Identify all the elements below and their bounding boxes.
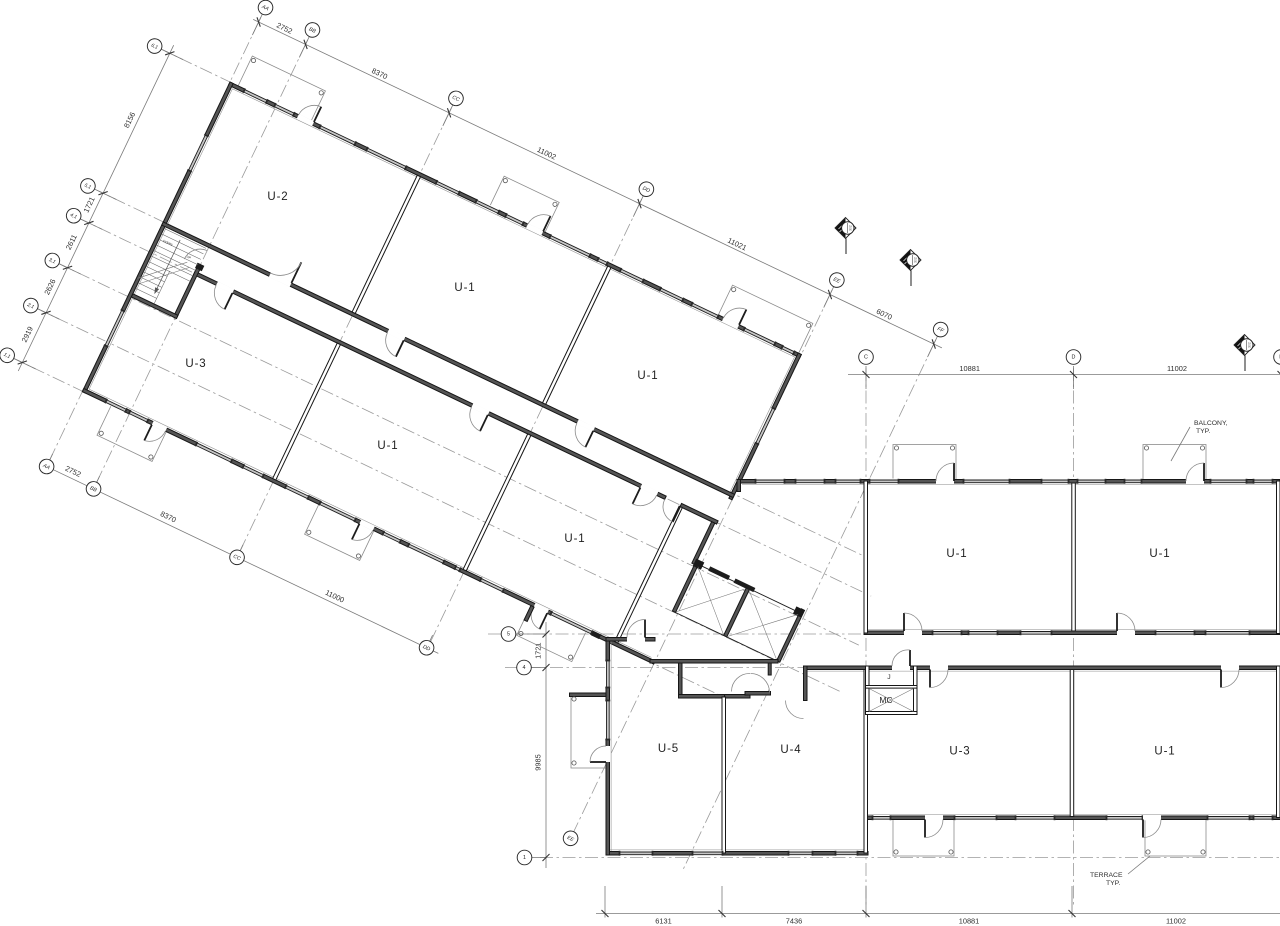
svg-text:11002: 11002 <box>1167 364 1187 373</box>
svg-text:U-4: U-4 <box>780 744 801 756</box>
svg-text:9985: 9985 <box>534 754 543 770</box>
svg-text:302: 302 <box>1248 342 1252 348</box>
svg-text:BALCONY,: BALCONY, <box>1194 420 1228 427</box>
svg-text:U-1: U-1 <box>377 440 398 452</box>
svg-text:U-5: U-5 <box>658 743 679 755</box>
svg-text:TERRACE: TERRACE <box>1090 872 1123 879</box>
svg-text:U-1: U-1 <box>946 548 967 560</box>
svg-text:TYP.: TYP. <box>1106 880 1120 887</box>
svg-text:U-1: U-1 <box>564 533 585 545</box>
svg-text:7436: 7436 <box>786 917 802 926</box>
svg-text:1721: 1721 <box>534 642 543 658</box>
svg-text:4: 4 <box>523 665 526 671</box>
svg-text:J: J <box>887 674 890 681</box>
svg-text:302: 302 <box>849 225 853 231</box>
svg-text:U-3: U-3 <box>949 746 970 758</box>
svg-text:U-2: U-2 <box>267 191 288 203</box>
svg-text:6131: 6131 <box>655 917 671 926</box>
svg-text:10881: 10881 <box>959 364 980 373</box>
svg-text:U-1: U-1 <box>1154 746 1175 758</box>
svg-text:U-1: U-1 <box>1149 548 1170 560</box>
svg-text:5: 5 <box>507 632 510 638</box>
svg-text:302: 302 <box>914 257 918 263</box>
svg-text:11002: 11002 <box>1166 917 1186 926</box>
svg-text:U-1: U-1 <box>454 282 475 294</box>
svg-text:U-1: U-1 <box>637 370 658 382</box>
svg-text:10881: 10881 <box>959 917 980 926</box>
svg-text:1: 1 <box>523 855 526 861</box>
svg-text:TYP.: TYP. <box>1196 428 1210 435</box>
svg-text:D: D <box>1072 355 1076 361</box>
svg-text:MC: MC <box>879 695 892 705</box>
svg-text:C: C <box>864 355 868 361</box>
svg-text:U-3: U-3 <box>185 358 206 370</box>
